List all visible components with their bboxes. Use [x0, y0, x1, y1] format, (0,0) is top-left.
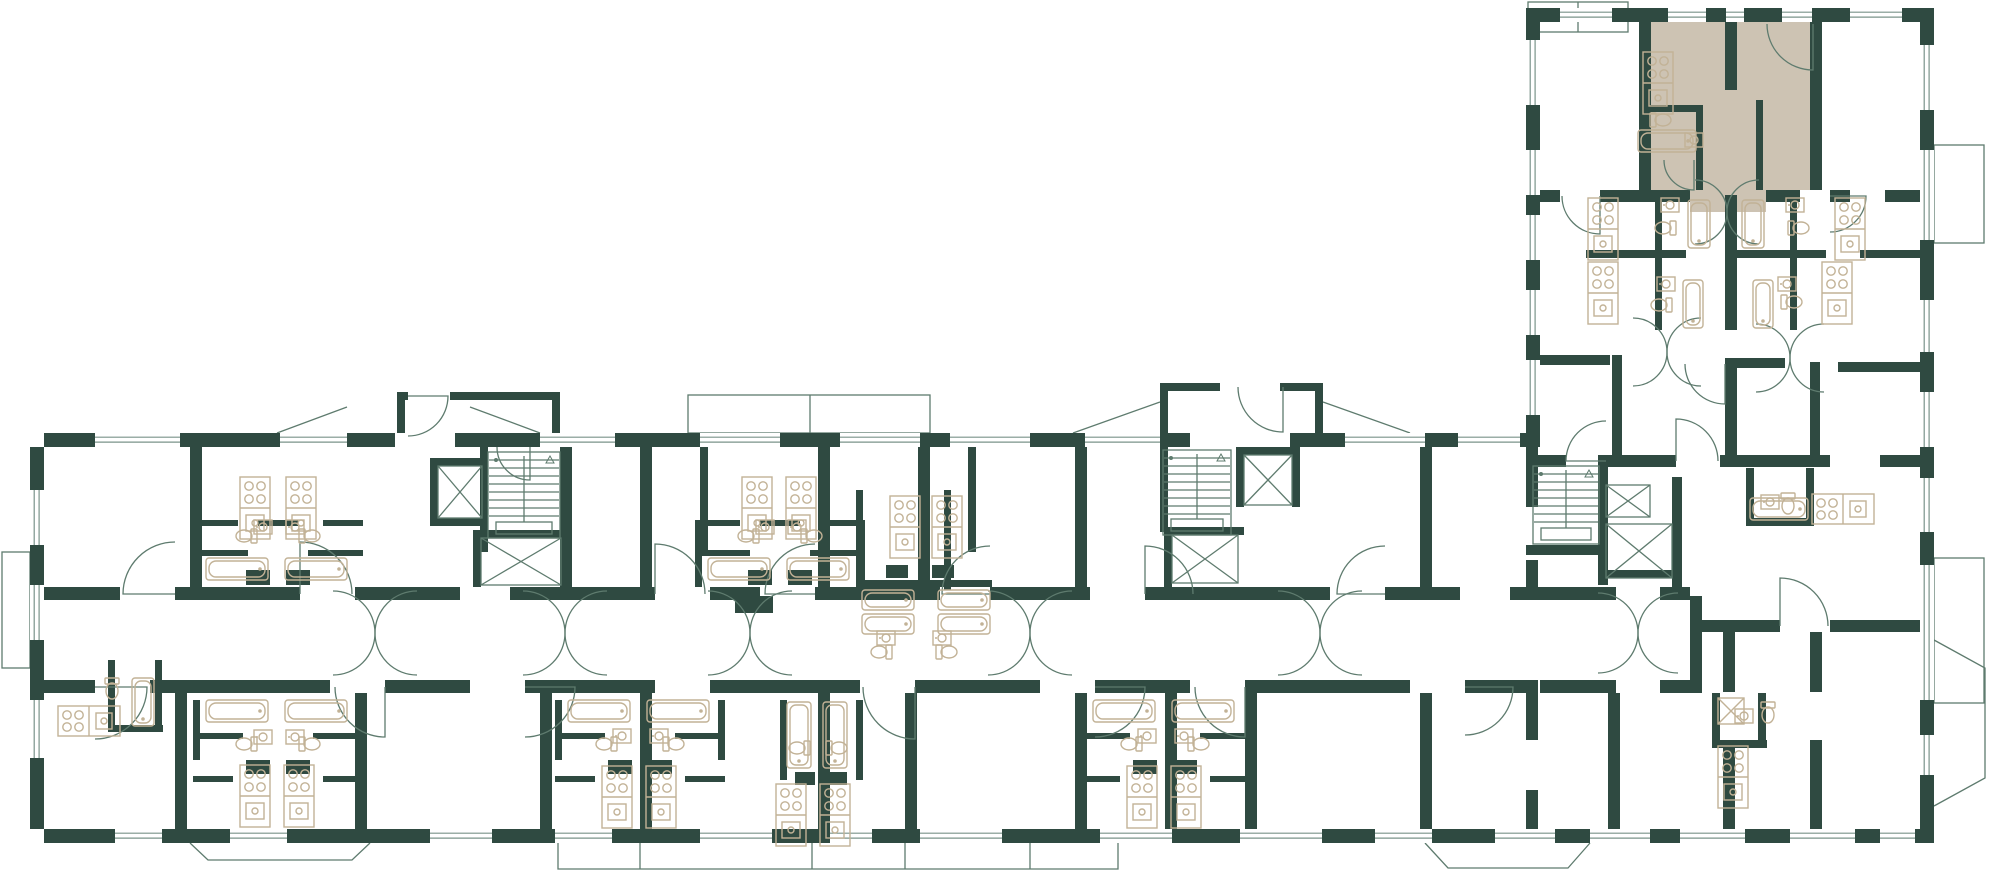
window	[1680, 829, 1745, 843]
wall-segment	[1920, 532, 1934, 565]
wall-segment	[856, 580, 918, 587]
balcony-outline	[558, 843, 1118, 869]
window	[1526, 215, 1540, 260]
wall-segment	[1420, 693, 1432, 829]
bathtub	[285, 558, 347, 580]
wall-segment	[193, 550, 248, 556]
toilet	[1781, 493, 1795, 514]
elevator-shaft	[481, 538, 561, 585]
bathtub	[285, 700, 347, 722]
kitchen-unit	[1812, 494, 1874, 524]
wall-segment	[915, 680, 1040, 693]
wall-segment	[1725, 22, 1737, 90]
wall-segment	[695, 520, 740, 526]
wall-segment	[780, 433, 840, 447]
wall-segment	[1744, 8, 1782, 22]
window	[1850, 8, 1902, 22]
window	[1085, 433, 1160, 447]
window	[1880, 829, 1915, 843]
window	[1345, 433, 1425, 447]
wall-segment	[1660, 680, 1690, 693]
window	[1526, 360, 1540, 415]
wall-segment	[1810, 632, 1822, 692]
wall-segment	[397, 587, 460, 600]
wall-segment	[1425, 433, 1458, 447]
wall-segment	[1920, 700, 1934, 735]
wall-segment	[710, 680, 860, 693]
staircase	[1533, 466, 1599, 544]
wall-segment	[193, 733, 243, 739]
window	[1726, 8, 1744, 22]
door-arc	[408, 396, 448, 436]
wall-segment	[44, 433, 95, 447]
window	[1920, 45, 1934, 110]
wall-segment	[430, 458, 484, 466]
double-swing-door	[988, 591, 1072, 675]
door-arc	[1676, 419, 1718, 461]
window	[840, 433, 920, 447]
sink	[877, 631, 895, 645]
wall-segment	[1080, 700, 1087, 760]
kitchen-unit	[1127, 766, 1157, 828]
wall-segment	[323, 520, 363, 526]
balcony-outline	[1934, 558, 1984, 703]
wall-segment	[1806, 468, 1814, 526]
wall-segment	[567, 587, 655, 600]
double-swing-door	[1598, 593, 1678, 673]
wall-segment	[1810, 362, 1820, 457]
wall-segment	[30, 640, 44, 700]
wall-segment	[150, 680, 330, 693]
wall-segment	[1200, 733, 1250, 739]
wall-segment	[30, 545, 44, 585]
elevator-shaft	[1244, 455, 1292, 505]
wall-segment	[1920, 352, 1934, 392]
wall-segment	[1586, 250, 1686, 258]
elevator-shaft	[1172, 535, 1238, 583]
kitchen-unit	[890, 496, 920, 558]
kitchen-unit	[602, 766, 632, 828]
wall-segment	[552, 392, 560, 433]
window	[1526, 150, 1540, 195]
door-arc	[1195, 687, 1245, 737]
elevator-shaft	[1606, 485, 1650, 517]
wall-segment	[1606, 455, 1676, 467]
window	[1526, 290, 1540, 335]
wall-segment	[308, 550, 363, 556]
wall-segment	[675, 733, 725, 739]
door-arc	[1780, 578, 1828, 626]
staircase	[1163, 450, 1231, 535]
wall-segment	[1725, 368, 1737, 455]
wall-segment	[818, 447, 830, 587]
wall-segment	[1810, 740, 1822, 829]
wall-segment	[1712, 740, 1767, 748]
wall-segment	[1746, 518, 1806, 526]
kitchen-unit	[1588, 262, 1618, 324]
bathtub	[647, 700, 709, 722]
wall-segment	[1810, 22, 1822, 190]
balcony-outline	[688, 395, 930, 433]
window	[30, 700, 44, 758]
wall-segment	[473, 530, 481, 587]
bathtub	[1172, 700, 1234, 722]
kitchen-unit	[240, 765, 270, 827]
wall-segment	[1855, 829, 1880, 843]
sink	[933, 631, 951, 645]
wall-segment	[1902, 8, 1934, 22]
wall-segment	[1420, 447, 1432, 587]
window	[700, 829, 772, 843]
wall-segment	[856, 490, 863, 590]
wall-segment	[1526, 680, 1538, 740]
wall-segment	[1002, 829, 1100, 843]
double-swing-door	[333, 591, 417, 675]
doors-layer	[95, 24, 1866, 739]
wall-segment	[1236, 447, 1298, 455]
wall-segment	[555, 700, 562, 760]
wall-segment	[430, 518, 484, 526]
wall-segment	[1838, 362, 1920, 372]
window	[540, 433, 615, 447]
wall-segment	[930, 580, 992, 587]
wall-segment	[780, 700, 787, 780]
wall-segment	[287, 829, 430, 843]
door-arc	[1465, 687, 1513, 735]
wall-segment	[555, 776, 595, 782]
fixtures-layer	[58, 52, 1874, 846]
wall-segment	[1245, 693, 1257, 829]
wall-segment	[1030, 433, 1085, 447]
wall-segment	[1526, 195, 1540, 215]
toilet	[936, 645, 957, 659]
balcony-outline	[1934, 640, 1985, 806]
wall-segment	[155, 660, 162, 730]
window	[1590, 829, 1650, 843]
wall-segment	[175, 693, 187, 829]
window	[1375, 829, 1432, 843]
double-swing-door	[523, 591, 607, 675]
balcony-outline	[1934, 145, 1984, 243]
wall-segment	[1812, 8, 1850, 22]
window	[1560, 8, 1612, 22]
bathtub	[1683, 280, 1703, 328]
wall-segment	[44, 680, 95, 693]
wall-segment	[1210, 776, 1250, 782]
wall-segment	[430, 458, 438, 526]
toilet	[871, 645, 892, 659]
wall-segment	[615, 433, 700, 447]
bathtub	[206, 558, 268, 580]
wall-segment	[560, 447, 572, 587]
balcony-outline	[1425, 843, 1590, 868]
window	[1920, 565, 1934, 700]
balcony-outline	[470, 407, 540, 433]
balcony-outline	[1323, 402, 1410, 433]
wall-segment	[1612, 8, 1668, 22]
wall-segment	[1600, 190, 1690, 202]
wall-segment	[1720, 455, 1830, 467]
wall-segment	[30, 447, 44, 490]
wall-segment	[1526, 8, 1560, 22]
wall-segment	[1612, 355, 1622, 455]
wall-segment	[1245, 680, 1410, 693]
wall-segment	[397, 392, 405, 433]
wall-segment	[1322, 829, 1375, 843]
wall-segment	[323, 776, 363, 782]
wall-segment	[555, 733, 605, 739]
wall-segment	[313, 733, 363, 739]
wall-segment	[718, 700, 725, 760]
window	[1526, 40, 1540, 105]
wall-segment	[1830, 620, 1920, 632]
floor-plan-canvas	[0, 0, 2000, 871]
wall-segment	[1160, 433, 1190, 447]
wall-segment	[1236, 447, 1244, 507]
stairs-and-elevators-layer	[438, 450, 1672, 585]
wall-segment	[1690, 620, 1780, 632]
wall-segment	[856, 700, 863, 780]
wall-segment	[347, 433, 395, 447]
window	[230, 829, 287, 843]
sink	[613, 729, 631, 743]
wall-segment	[1080, 776, 1120, 782]
bathtub	[1093, 700, 1155, 722]
window	[555, 829, 612, 843]
window	[430, 829, 492, 843]
bathtub	[1753, 280, 1773, 328]
wall-segment	[1172, 829, 1240, 843]
window	[830, 829, 872, 843]
wall-segment	[1920, 110, 1934, 150]
staircase	[488, 452, 560, 538]
window	[115, 829, 162, 843]
wall-segment	[1526, 260, 1540, 290]
wall-segment	[1655, 195, 1662, 330]
wall-segment	[1075, 447, 1087, 587]
shower-tray	[1718, 698, 1744, 724]
wall-segment	[180, 433, 280, 447]
wall-segment	[1915, 829, 1934, 843]
wall-segment	[1920, 240, 1934, 300]
wall-segment	[1723, 632, 1735, 692]
wall-segment	[612, 829, 700, 843]
sink	[1175, 729, 1193, 743]
wall-segment	[455, 433, 540, 447]
wall-segment	[1756, 100, 1763, 190]
wall-segment	[1920, 775, 1934, 829]
wall-segment	[1555, 829, 1590, 843]
window	[1920, 392, 1934, 447]
wall-segment	[1540, 355, 1610, 365]
wall-segment	[1432, 829, 1495, 843]
window	[1668, 8, 1706, 22]
wall-segment	[193, 700, 200, 760]
elevator-shaft	[438, 466, 482, 518]
wall-segment	[1526, 545, 1606, 555]
wall-segment	[175, 587, 300, 600]
wall-segment	[1160, 383, 1220, 391]
wall-segment	[162, 829, 230, 843]
toilet	[1121, 737, 1142, 751]
wall-segment	[1292, 447, 1300, 507]
wall-segment	[30, 758, 44, 829]
sink	[650, 729, 668, 743]
toilet	[663, 737, 684, 751]
bathtub	[132, 678, 154, 726]
wall-segment	[886, 565, 908, 578]
wall-segment	[1526, 22, 1540, 40]
bathtub	[568, 700, 630, 722]
wall-segment	[1726, 250, 1826, 258]
wall-segment	[640, 447, 652, 587]
window	[30, 585, 44, 640]
window	[950, 433, 1030, 447]
wall-segment	[1725, 358, 1785, 368]
elevator-shaft	[1606, 524, 1672, 578]
wall-segment	[355, 587, 397, 600]
wall-segment	[1880, 455, 1934, 467]
bathtub	[206, 700, 268, 722]
window	[280, 433, 347, 447]
toilet	[596, 737, 617, 751]
wall-segment	[920, 433, 950, 447]
wall-segment	[1690, 596, 1702, 693]
bathtub	[823, 702, 847, 768]
wall-segment	[1540, 190, 1560, 202]
window	[1920, 150, 1934, 240]
toilet	[1188, 737, 1209, 751]
wall-segment	[685, 776, 725, 782]
wall-segment	[193, 776, 233, 782]
wall-segment	[795, 772, 815, 785]
wall-segment	[827, 772, 847, 785]
wall-segment	[1526, 415, 1540, 447]
wall-segment	[1650, 829, 1680, 843]
window	[30, 490, 44, 545]
wall-segment	[1706, 8, 1726, 22]
window	[920, 829, 1002, 843]
sink	[1761, 495, 1779, 509]
wall-segment	[990, 587, 1090, 600]
wall-segment	[1164, 527, 1172, 587]
window	[1458, 433, 1520, 447]
wall-segment	[1860, 250, 1920, 258]
window	[1920, 735, 1934, 775]
window	[1495, 829, 1555, 843]
wall-segment	[1526, 105, 1540, 150]
window	[1100, 829, 1172, 843]
window	[1920, 478, 1934, 532]
wall-segment	[44, 587, 120, 600]
kitchen-unit	[284, 765, 314, 827]
double-swing-door	[1278, 591, 1362, 675]
kitchen-unit	[1822, 262, 1852, 324]
window	[95, 433, 180, 447]
wall-segment	[540, 693, 552, 829]
balcony-outline	[2, 552, 30, 668]
wall-segment	[1526, 335, 1540, 360]
bathtub	[708, 558, 770, 580]
window	[1920, 300, 1934, 352]
bathtub	[938, 590, 990, 610]
door-arc	[1238, 387, 1283, 432]
wall-segment	[1712, 693, 1720, 743]
sink	[1138, 729, 1156, 743]
wall-segment	[1540, 680, 1616, 693]
window	[1790, 829, 1855, 843]
wall-segment	[385, 680, 470, 693]
wall-segment	[1280, 383, 1323, 391]
wall-segment	[450, 392, 560, 400]
door-arc	[123, 542, 175, 594]
balcony-outline	[277, 407, 347, 433]
window	[1782, 8, 1812, 22]
wall-segment	[1745, 829, 1790, 843]
wall-segment	[772, 829, 830, 843]
wall-segment	[1526, 455, 1566, 467]
wall-segment	[968, 447, 976, 552]
floor-plan-page	[0, 0, 2000, 871]
door-arc	[1337, 546, 1385, 594]
window	[700, 433, 780, 447]
balcony-outline	[1073, 402, 1160, 433]
wall-segment	[44, 829, 115, 843]
balcony-outline	[190, 843, 370, 860]
wall-segment	[1385, 587, 1460, 600]
window	[1240, 829, 1322, 843]
wall-segment	[1790, 195, 1797, 330]
toilet	[789, 741, 810, 755]
wall-segment	[1290, 433, 1345, 447]
wall-segment	[1885, 190, 1920, 202]
wall-segment	[193, 520, 238, 526]
wall-segment	[1920, 22, 1934, 45]
wall-segment	[872, 829, 920, 843]
wall-segment	[695, 550, 750, 556]
wall-segment	[1608, 693, 1620, 829]
bathtub	[787, 702, 811, 768]
wall-segment	[492, 829, 555, 843]
